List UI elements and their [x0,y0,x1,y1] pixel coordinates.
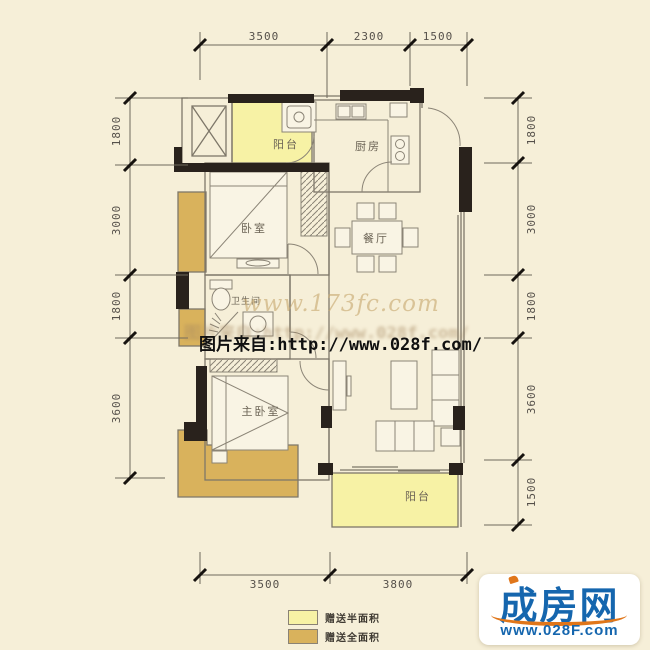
dim-right-5: 1500 [525,462,539,522]
dim-top-1: 3500 [234,30,294,44]
legend-swatch-full [288,629,318,644]
legend-label-full: 赠送全面积 [325,629,380,644]
dim-right-2: 3000 [525,189,539,249]
dim-bottom-2: 3800 [368,578,428,592]
watermark-source: 图片来自:http://www.028f.com/ [199,330,499,355]
dim-left-3: 1800 [110,276,124,336]
logo-url: www.028F.com [479,622,640,639]
room-bedroom: 卧室 [232,220,276,236]
legend-swatch-half [288,610,318,625]
dim-right-4: 3600 [525,369,539,429]
dim-top-3: 1500 [408,30,468,44]
watermark-173fc: www.173fc.com [242,291,422,317]
legend-full-area: 赠送全面积 [288,629,380,644]
room-balcony-bottom: 阳台 [396,488,440,504]
room-master-bedroom: 主卧室 [234,403,288,419]
floorplan-page: { "dimensions": { "top": ["3500", "2300"… [0,0,650,650]
dim-left-1: 1800 [110,101,124,161]
legend-half-area: 赠送半面积 [288,610,380,625]
dim-left-4: 3600 [110,378,124,438]
dim-top-2: 2300 [339,30,399,44]
dim-right-3: 1800 [525,276,539,336]
dim-right-1: 1800 [525,100,539,160]
dim-bottom-1: 3500 [235,578,295,592]
room-dining: 餐厅 [354,230,398,246]
site-logo[interactable]: 成房网 www.028F.com [479,574,640,645]
room-kitchen: 厨房 [346,138,390,154]
legend-label-half: 赠送半面积 [325,610,380,625]
room-balcony-top: 阳台 [266,136,306,152]
dim-left-2: 3000 [110,190,124,250]
